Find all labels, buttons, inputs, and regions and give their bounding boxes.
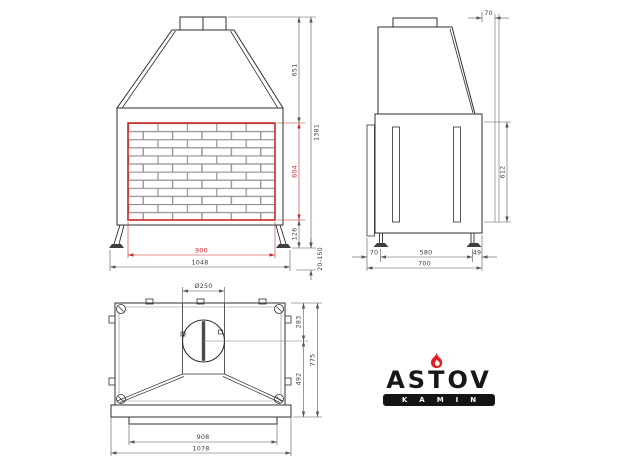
brand-tagline: KAMIN <box>402 396 488 404</box>
hood-slope-shading <box>123 31 278 108</box>
technical-drawing-sheet: 651 604 126 1381 20-150 900 1048 70 <box>0 0 624 460</box>
side-left-foot <box>374 243 389 247</box>
dim-top-total-width: 1078 <box>192 445 209 453</box>
hood-outline <box>117 30 283 108</box>
corner-bolts <box>117 305 284 404</box>
side-hood-slope-shading <box>450 29 473 113</box>
dim-firebox-height: 612 <box>499 166 507 179</box>
dim-opening-width: 900 <box>195 247 208 255</box>
dim-base-depth: 580 <box>420 249 433 257</box>
dim-front-offset: 49 <box>473 249 482 257</box>
dim-total-depth: 700 <box>418 260 431 268</box>
chimney-collar <box>180 17 226 30</box>
brand-tagline-bar: KAMIN <box>383 394 495 406</box>
right-leg <box>276 225 286 244</box>
drawing-svg: 651 604 126 1381 20-150 900 1048 70 <box>0 0 624 460</box>
dim-flue-from-back: 283 <box>295 316 303 329</box>
top-view <box>109 299 308 424</box>
dim-total-width: 1048 <box>191 259 208 267</box>
top-body-outline <box>115 303 285 405</box>
dim-plinth-height: 126 <box>291 228 299 241</box>
side-body-outline <box>375 114 482 233</box>
side-right-foot <box>467 243 482 247</box>
firebox-opening-bricks <box>128 123 275 220</box>
front-fascia-outer <box>111 405 291 417</box>
front-view <box>109 17 291 248</box>
side-right-leg <box>471 233 474 243</box>
dim-hood-height: 651 <box>291 64 299 77</box>
dim-total-height: 1381 <box>313 124 321 141</box>
mounting-tabs <box>109 299 291 385</box>
rear-heat-shield <box>367 125 375 236</box>
dim-opening-height: 604 <box>291 165 299 178</box>
brand-logo: ASTOV KAMIN <box>381 352 497 406</box>
flame-icon <box>429 353 444 370</box>
top-view-dimensions <box>111 287 322 456</box>
right-foot <box>276 244 291 248</box>
front-fascia-inner <box>129 417 277 424</box>
side-left-leg <box>380 233 383 243</box>
side-hood-outline <box>378 27 475 114</box>
dim-flue-to-front: 492 <box>295 373 303 386</box>
dim-top-offset: 70 <box>484 9 493 17</box>
side-view-dimensions <box>352 12 511 271</box>
dim-leg-adjust: 20-150 <box>316 247 324 271</box>
dim-inner-width: 908 <box>197 433 210 441</box>
convection-slot-left <box>393 127 400 222</box>
side-chimney-collar <box>393 18 437 27</box>
left-leg <box>114 225 124 244</box>
front-plane-lines <box>495 14 499 222</box>
dim-rear-offset: 70 <box>370 249 379 257</box>
top-view-dim-labels: Ø250 283 492 775 908 1078 <box>192 282 316 453</box>
dim-flue-diameter: Ø250 <box>194 282 212 290</box>
top-inner-fold <box>119 307 281 401</box>
left-foot <box>109 244 124 248</box>
side-view-dim-labels: 70 612 70 580 49 700 <box>370 9 507 268</box>
dim-top-total-depth: 775 <box>309 354 317 367</box>
side-view <box>367 14 499 247</box>
hood-fold-lines <box>117 374 283 403</box>
convection-slot-right <box>454 127 461 222</box>
brand-name: ASTOV <box>381 368 497 392</box>
